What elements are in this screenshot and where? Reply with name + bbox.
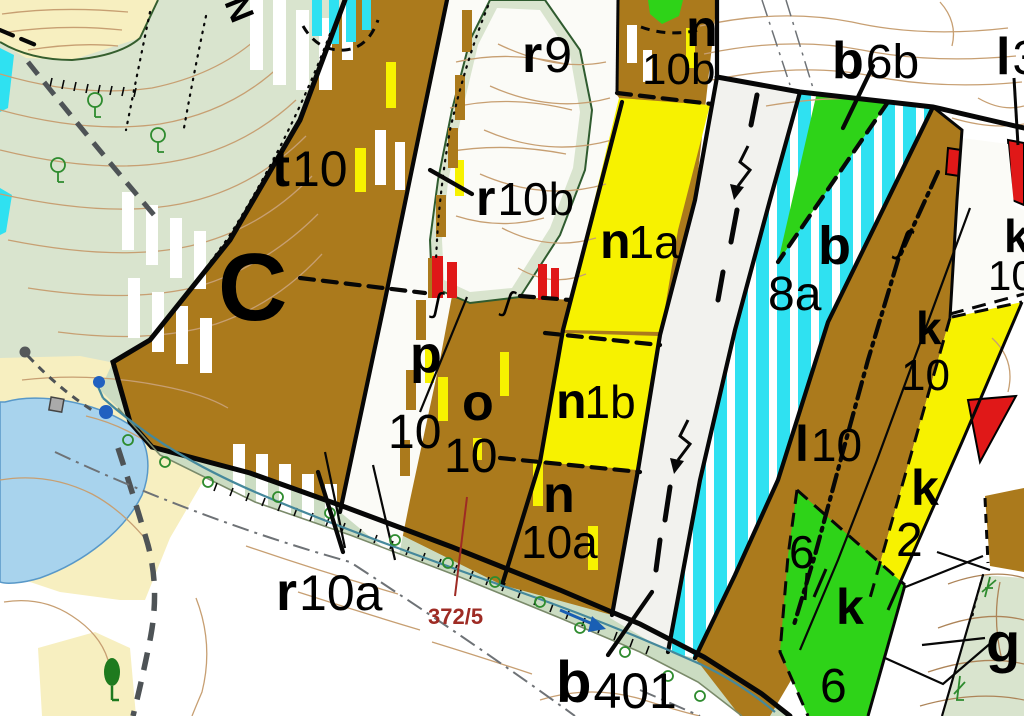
label-b6b: b6b [832, 32, 919, 90]
label-b8a-letter: b [818, 216, 851, 276]
parcel-brown-patch [985, 488, 1024, 572]
map-canvas[interactable]: ʃ ʃ ʃ N t10 C r9 r10b n 10b b6b l3 n1a n… [0, 0, 1024, 716]
label-k10-mid-num: 10 [901, 351, 950, 400]
label-n1a: n1a [600, 213, 680, 269]
label-p-letter: p [410, 326, 442, 384]
sand-patch-bottom [38, 632, 136, 716]
label-b8a-num: 8a [768, 268, 822, 321]
solid-tree [104, 658, 120, 686]
label-r10a: r10a [276, 562, 383, 622]
r9-right-edge [617, 0, 618, 93]
label-l3: l3 [996, 28, 1024, 86]
spring-blob-2 [99, 405, 113, 419]
label-l10: l10 [795, 416, 862, 472]
thin-line-3 [937, 552, 990, 570]
building-square [49, 397, 64, 412]
label-k2-num: 2 [896, 514, 923, 567]
label-g: g [986, 611, 1020, 674]
forest-map[interactable]: ʃ ʃ ʃ N t10 C r9 r10b n 10b b6b l3 n1a n… [0, 0, 1024, 716]
parcel-red-sliver [968, 396, 1016, 462]
label-p-num: 10 [388, 406, 441, 459]
label-n10a-num: 10a [521, 516, 598, 568]
label-n1b: n1b [556, 373, 636, 429]
label-n-top-num: 10b [642, 45, 715, 94]
label-k2-letter: k [911, 460, 939, 516]
label-t10: t10 [272, 138, 348, 198]
label-k10-mid-letter: k [916, 302, 942, 354]
leader-l3 [1014, 78, 1018, 145]
label-r10b: r10b [476, 170, 574, 226]
label-k6-letter: k [836, 579, 864, 635]
label-six-small: 6 [789, 526, 815, 578]
label-parcel-ref: 372/5 [428, 604, 483, 629]
spring-blob-1 [93, 376, 105, 388]
label-o-letter: o [462, 374, 494, 432]
label-k10-edge-num: 10 [988, 252, 1024, 299]
label-k6-num: 6 [820, 660, 847, 713]
label-c-big: C [218, 234, 287, 341]
label-o-num: 10 [444, 430, 497, 483]
label-r9: r9 [522, 26, 572, 84]
